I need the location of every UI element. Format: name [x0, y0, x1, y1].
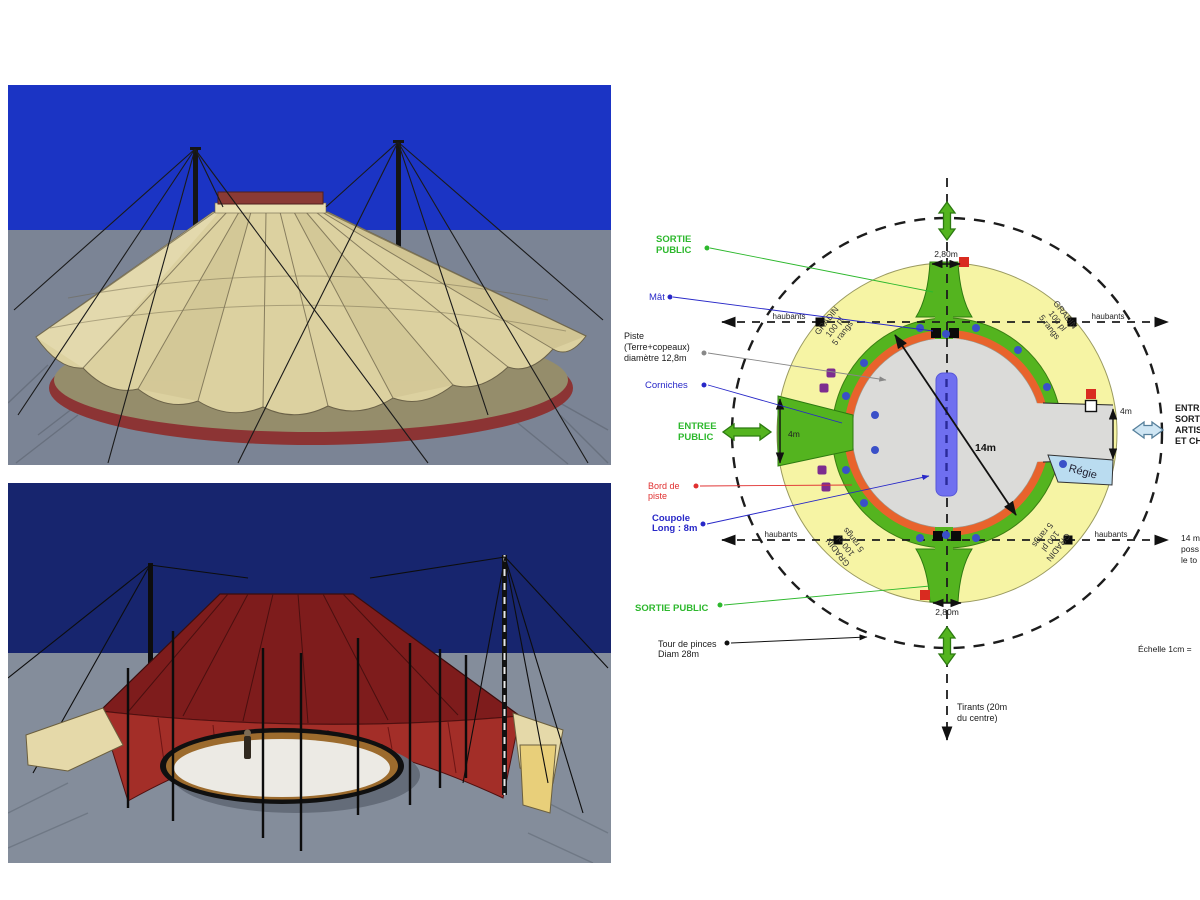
right-note-2: poss — [1181, 544, 1199, 554]
artistes-label-4: ET CHEVAUX — [1175, 436, 1200, 446]
dim-4m-left: 4m — [788, 429, 800, 439]
sortie-public-top-label-1: SORTIE — [656, 234, 691, 245]
tirants-label-1: Tirants (20m — [957, 702, 1007, 712]
dim-14m-label: 14m — [975, 442, 996, 454]
right-flap — [520, 745, 556, 813]
entree-public-label-2: PUBLIC — [678, 432, 714, 443]
bottom-exit-arrow — [939, 627, 955, 665]
coupole-label-2: Long : 8m — [652, 523, 697, 534]
bord-de-piste-label-2: piste — [648, 491, 667, 501]
sortie-public-bottom-label: SORTIE PUBLIC — [635, 603, 709, 614]
artistes-label-1: ENTRÉE — [1175, 403, 1200, 413]
haubants-label-sw: haubants — [765, 530, 798, 539]
page: Régie 14m — [0, 0, 1200, 900]
tour-de-pinces-label-1: Tour de pinces — [658, 639, 717, 649]
dim-280-bottom: 2,80m — [935, 607, 959, 617]
bord-de-piste-label-1: Bord de — [648, 481, 680, 491]
haubants-label-se: haubants — [1095, 530, 1128, 539]
artists-corridor — [1028, 403, 1113, 462]
right-note-1: 14 m — [1181, 533, 1200, 543]
regie-box: Régie — [1048, 455, 1113, 485]
tour-de-pinces-label-2: Diam 28m — [658, 649, 699, 659]
tirants-label-2: du centre) — [957, 713, 998, 723]
dim-280-top: 2,80m — [934, 249, 958, 259]
piste-label-1: Piste — [624, 331, 644, 341]
top-exit-arrow — [939, 202, 955, 240]
person-figure — [244, 730, 251, 760]
haubants-label-ne: haubants — [1092, 312, 1125, 321]
mat-label: Mât — [649, 292, 665, 303]
sortie-public-top-label-2: PUBLIC — [656, 245, 692, 256]
tent-cutaway-illustration — [8, 483, 611, 863]
corniches-label: Corniches — [645, 380, 688, 391]
artists-entry-arrow — [1133, 422, 1163, 438]
artistes-label-2: SORTIE — [1175, 414, 1200, 424]
piste-label-2: (Terre+copeaux) — [624, 342, 690, 352]
floor-plan-diagram: Régie 14m — [620, 150, 1200, 770]
tent-exterior-illustration — [8, 85, 611, 465]
piste-label-3: diamètre 12,8m — [624, 353, 687, 363]
coupole-shape — [936, 373, 957, 496]
artistes-label-3: ARTISTES — [1175, 425, 1200, 435]
right-note-3: le to — [1181, 555, 1197, 565]
dim-4m-right: 4m — [1120, 406, 1132, 416]
coupole-band — [218, 192, 323, 204]
public-entry-arrow — [723, 424, 771, 440]
right-edge-labels: ENTRÉE SORTIE ARTISTES ET CHEVAUX 14 m p… — [1138, 403, 1200, 654]
entree-public-label-1: ENTREE — [678, 421, 717, 432]
echelle-label: Échelle 1cm = — [1138, 644, 1192, 654]
